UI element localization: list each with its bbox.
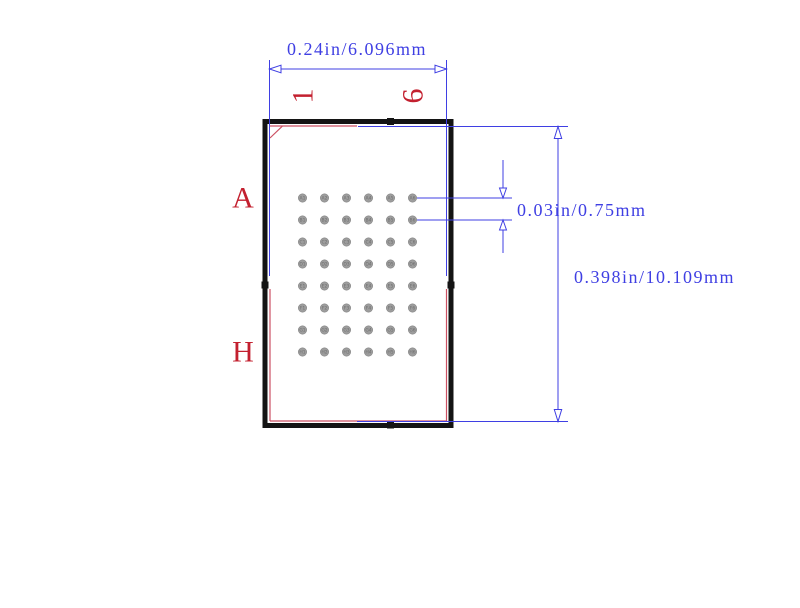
ball-designator-B4: B4 — [366, 218, 372, 224]
ball-designator-A5: A5 — [388, 196, 394, 202]
footprint-drawing: A1A2A3A4A5A6B1B2B3B4B5B6C1C2C3C4C5C6D1D2… — [0, 0, 800, 608]
ball-designator-A1: A1 — [300, 196, 306, 202]
ball-designator-D1: D1 — [299, 262, 305, 268]
ball-designator-G3: G3 — [343, 328, 349, 334]
ball-designator-A3: A3 — [344, 196, 350, 202]
ball-designator-H6: H6 — [409, 350, 415, 356]
ball-designator-C3: C3 — [343, 240, 349, 246]
ball-designator-F4: F4 — [366, 306, 372, 312]
ball-designator-B2: B2 — [322, 218, 328, 224]
ball-designator-H3: H3 — [343, 350, 349, 356]
height-dimension-label: 0.398in/10.109mm — [574, 267, 735, 287]
ball-designator-F6: F6 — [410, 306, 416, 312]
ball-designator-H2: H2 — [321, 350, 327, 356]
ball-designator-B5: B5 — [388, 218, 394, 224]
ball-designator-H1: H1 — [299, 350, 305, 356]
ball-designator-D5: D5 — [387, 262, 393, 268]
origin-tick-left — [262, 282, 269, 289]
origin-tick-right — [448, 282, 455, 289]
ball-designator-A6: A6 — [410, 196, 416, 202]
ball-designator-E1: E1 — [300, 284, 306, 290]
ball-designator-D2: D2 — [321, 262, 327, 268]
package-body-outline — [265, 122, 451, 426]
ball-designator-B3: B3 — [344, 218, 350, 224]
width-dimension-label: 0.24in/6.096mm — [287, 39, 427, 59]
ball-designator-G1: G1 — [299, 328, 305, 334]
row-label-last: H — [232, 336, 254, 369]
ball-designator-F2: F2 — [322, 306, 328, 312]
height-dimension: 0.398in/10.109mm — [357, 127, 735, 422]
column-label-last: 6 — [397, 89, 430, 104]
height-dim-arrow-bottom-icon — [554, 410, 561, 422]
ball-designator-E6: E6 — [410, 284, 416, 290]
ball-grid: A1A2A3A4A5A6B1B2B3B4B5B6C1C2C3C4C5C6D1D2… — [298, 194, 416, 356]
pin1-marker — [270, 126, 283, 138]
width-dimension: 0.24in/6.096mm — [270, 39, 447, 276]
row-label-first: A — [232, 182, 254, 215]
pitch-dim-arrow-up-icon — [500, 220, 507, 230]
grid-axis-labels: 1 6 A H — [232, 89, 429, 369]
ball-designator-F3: F3 — [344, 306, 350, 312]
height-dim-arrow-top-icon — [554, 127, 561, 139]
ball-designator-B1: B1 — [300, 218, 306, 224]
footprint-drawing-canvas: A1A2A3A4A5A6B1B2B3B4B5B6C1C2C3C4C5C6D1D2… — [0, 0, 800, 608]
pitch-dim-arrow-down-icon — [500, 188, 507, 198]
ball-designator-A2: A2 — [322, 196, 328, 202]
ball-designator-C4: C4 — [365, 240, 371, 246]
width-dim-arrow-left-icon — [270, 65, 282, 73]
ball-designator-E3: E3 — [344, 284, 350, 290]
ball-designator-H4: H4 — [365, 350, 371, 356]
silkscreen — [270, 126, 447, 421]
ball-designator-D4: D4 — [365, 262, 371, 268]
width-dim-arrow-right-icon — [435, 65, 447, 73]
ball-designator-G6: G6 — [409, 328, 415, 334]
ball-designator-E5: E5 — [388, 284, 394, 290]
ball-designator-D3: D3 — [343, 262, 349, 268]
ball-designator-G5: G5 — [387, 328, 393, 334]
ball-designator-E4: E4 — [366, 284, 372, 290]
ball-designator-B6: B6 — [410, 218, 416, 224]
package-outline — [262, 118, 455, 429]
pitch-dimension-label: 0.03in/0.75mm — [517, 200, 647, 220]
ball-designator-E2: E2 — [322, 284, 328, 290]
origin-tick-top — [387, 118, 394, 125]
ball-designator-A4: A4 — [366, 196, 372, 202]
ball-designator-H5: H5 — [387, 350, 393, 356]
ball-designator-C2: C2 — [321, 240, 327, 246]
ball-designator-F1: F1 — [300, 306, 306, 312]
ball-designator-D6: D6 — [409, 262, 415, 268]
ball-designator-C1: C1 — [299, 240, 305, 246]
column-label-first: 1 — [287, 89, 320, 104]
ball-designator-C5: C5 — [387, 240, 393, 246]
origin-tick-bottom — [387, 422, 394, 429]
ball-designator-G2: G2 — [321, 328, 327, 334]
ball-designator-G4: G4 — [365, 328, 371, 334]
ball-designator-C6: C6 — [409, 240, 415, 246]
ball-designator-F5: F5 — [388, 306, 394, 312]
